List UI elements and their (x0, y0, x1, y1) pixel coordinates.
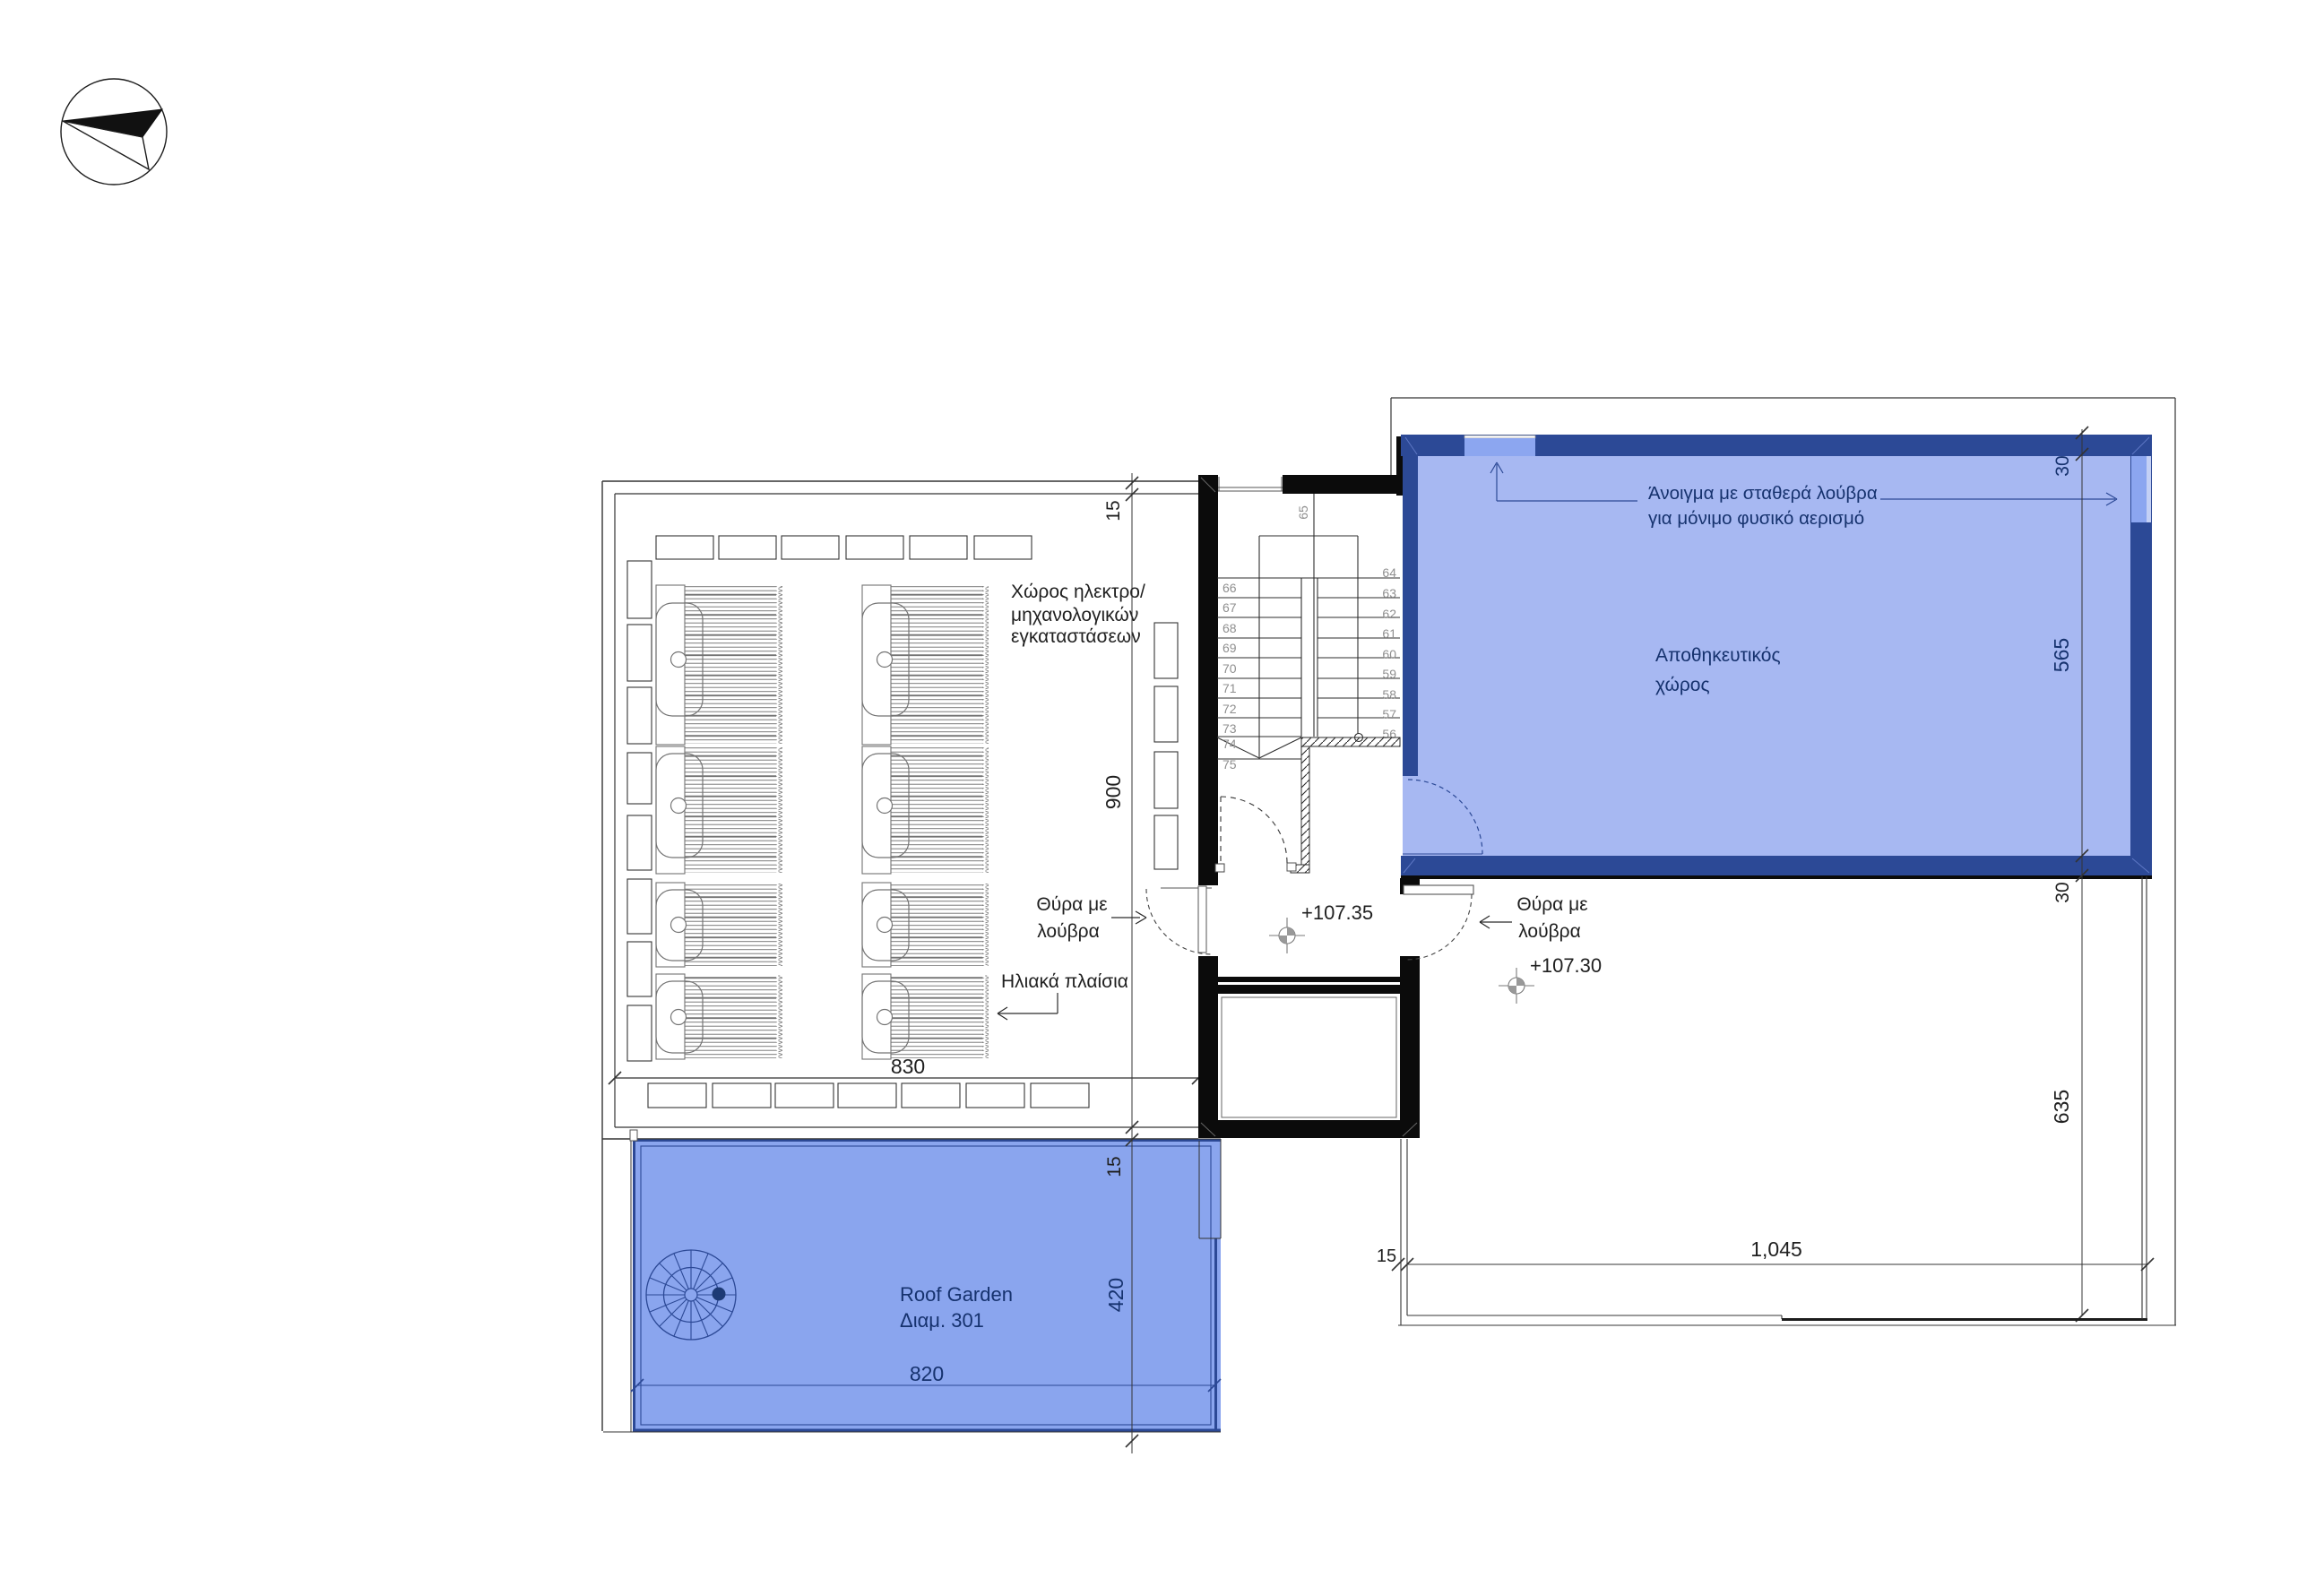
svg-text:εγκαταστάσεων: εγκαταστάσεων (1011, 626, 1141, 647)
svg-text:65: 65 (1296, 505, 1310, 520)
svg-text:58: 58 (1382, 687, 1396, 702)
svg-text:30: 30 (2052, 455, 2073, 476)
svg-text:66: 66 (1222, 581, 1237, 595)
svg-text:Αποθηκευτικός: Αποθηκευτικός (1655, 645, 1781, 666)
svg-text:635: 635 (2050, 1090, 2073, 1124)
svg-text:67: 67 (1222, 600, 1237, 615)
svg-text:820: 820 (910, 1362, 944, 1385)
svg-text:62: 62 (1382, 607, 1396, 621)
svg-text:900: 900 (1102, 775, 1125, 809)
svg-text:60: 60 (1382, 647, 1396, 661)
svg-text:Ηλιακά πλαίσια: Ηλιακά πλαίσια (1001, 971, 1128, 992)
svg-text:λούβρα: λούβρα (1518, 921, 1581, 942)
svg-text:565: 565 (2050, 638, 2073, 672)
svg-text:για μόνιμο φυσικό αερισμό: για μόνιμο φυσικό αερισμό (1648, 508, 1864, 529)
svg-text:Roof Garden: Roof Garden (900, 1283, 1013, 1306)
svg-text:15: 15 (1103, 500, 1124, 521)
svg-text:λούβρα: λούβρα (1037, 921, 1100, 942)
svg-text:68: 68 (1222, 621, 1237, 635)
svg-text:+107.35: +107.35 (1301, 901, 1373, 924)
svg-text:1,045: 1,045 (1750, 1237, 1802, 1261)
svg-text:75: 75 (1222, 757, 1237, 772)
svg-text:73: 73 (1222, 721, 1237, 736)
svg-text:420: 420 (1104, 1278, 1127, 1312)
svg-text:74: 74 (1222, 737, 1237, 751)
svg-text:64: 64 (1382, 565, 1396, 580)
svg-text:71: 71 (1222, 681, 1237, 695)
svg-text:Θύρα με: Θύρα με (1036, 894, 1107, 915)
svg-text:μηχανολογικών: μηχανολογικών (1011, 605, 1138, 625)
svg-text:Χώρος ηλεκτρο/: Χώρος ηλεκτρο/ (1011, 582, 1145, 602)
svg-text:830: 830 (891, 1055, 925, 1078)
svg-text:χώρος: χώρος (1655, 675, 1710, 695)
svg-text:+107.30: +107.30 (1530, 954, 1602, 977)
svg-text:70: 70 (1222, 661, 1237, 676)
svg-text:63: 63 (1382, 586, 1396, 600)
svg-text:15: 15 (1104, 1156, 1125, 1177)
svg-text:72: 72 (1222, 702, 1237, 716)
svg-text:Διαμ. 301: Διαμ. 301 (900, 1309, 984, 1332)
svg-text:Άνοιγμα με σταθερά λούβρα: Άνοιγμα με σταθερά λούβρα (1648, 483, 1878, 504)
svg-text:59: 59 (1382, 667, 1396, 681)
svg-text:30: 30 (2052, 882, 2073, 902)
svg-text:57: 57 (1382, 707, 1396, 721)
svg-text:69: 69 (1222, 641, 1237, 655)
svg-text:61: 61 (1382, 626, 1396, 641)
svg-text:15: 15 (1377, 1246, 1396, 1266)
svg-text:Θύρα με: Θύρα με (1516, 894, 1587, 915)
